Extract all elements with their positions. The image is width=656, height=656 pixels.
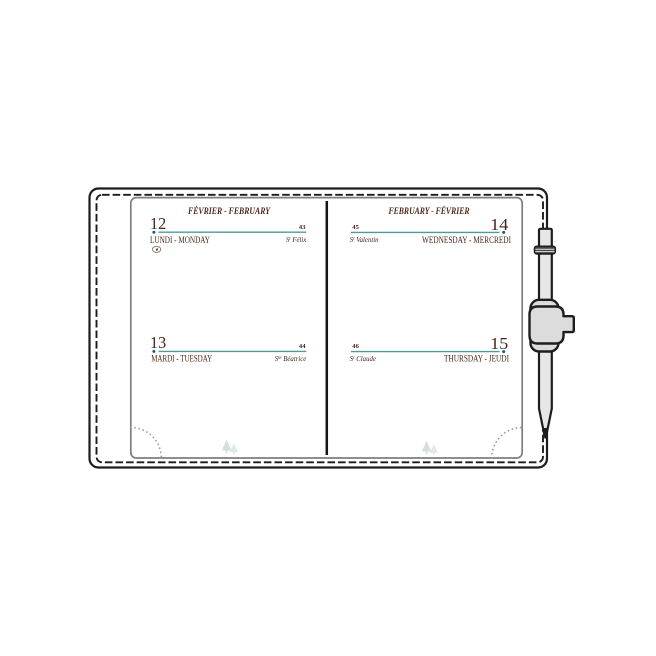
svg-text:MARDI - TUESDAY: MARDI - TUESDAY [151,354,212,364]
svg-text:14: 14 [490,215,509,234]
svg-text:THURSDAY - JEUDI: THURSDAY - JEUDI [444,354,509,364]
svg-text:44: 44 [299,343,306,350]
svg-text:St Valentin: St Valentin [350,237,379,244]
svg-text:45: 45 [352,224,359,231]
svg-text:FEBRUARY - FÉVRIER: FEBRUARY - FÉVRIER [388,205,470,217]
svg-text:FÉVRIER - FEBRUARY: FÉVRIER - FEBRUARY [187,205,271,217]
svg-text:LUNDI - MONDAY: LUNDI - MONDAY [150,235,210,245]
svg-text:13: 13 [150,333,166,352]
svg-text:15: 15 [490,334,508,353]
svg-text:WEDNESDAY - MERCREDI: WEDNESDAY - MERCREDI [422,235,511,245]
svg-text:46: 46 [352,343,359,350]
svg-text:St Félix: St Félix [286,237,306,244]
svg-text:43: 43 [299,224,306,231]
svg-text:St Claude: St Claude [350,356,376,363]
svg-text:12: 12 [150,214,166,233]
